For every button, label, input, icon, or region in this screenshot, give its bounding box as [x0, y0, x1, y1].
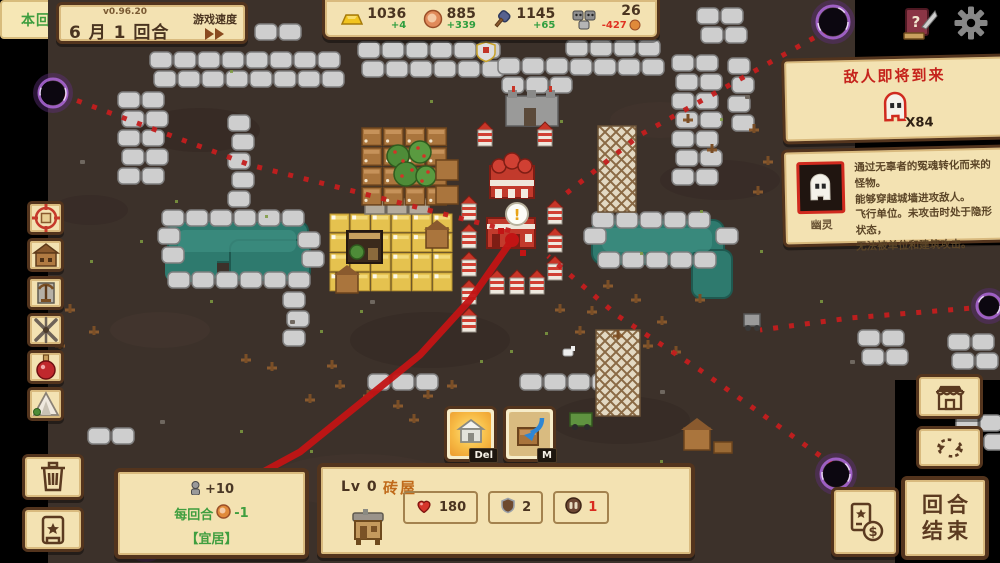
resource-value: 26 [621, 4, 640, 18]
occupancy-chip: 1 [553, 491, 609, 524]
enemy-incoming-panel: 敌人即将到来 X84 [781, 53, 1000, 144]
speed-label: 游戏速度 [193, 11, 237, 27]
meat-icon [423, 9, 443, 29]
unit-name: 幽灵 [810, 216, 832, 232]
svg-text:$: $ [868, 525, 877, 540]
wood-house-icon [32, 242, 60, 268]
end-turn-button[interactable]: 回合 结束 [901, 476, 989, 560]
fast-forward-icon[interactable] [205, 28, 225, 40]
heart-icon [415, 498, 433, 518]
end-turn-label-line2: 结束 [922, 518, 972, 544]
shield-icon [500, 497, 516, 518]
resource-gold: 1036+4 [341, 7, 406, 31]
person-icon [189, 481, 202, 499]
market-button[interactable] [916, 374, 983, 419]
enemy-count: X84 [905, 115, 933, 131]
ghost-icon [796, 161, 845, 214]
unit-description: 通过无辜者的冤魂转化而来的怪物。 能够穿越城墙进攻敌人。 飞行单位。未攻击时处于… [854, 158, 998, 243]
hotbar-slot-delete[interactable]: Del [444, 406, 497, 462]
resource-value: 1036 [367, 7, 406, 21]
market-icon [933, 381, 967, 413]
target-icon [32, 204, 60, 232]
resource-meat: 885+339 [423, 7, 476, 31]
selected-building-panel: Lv 0 砖屋 180 2 1 [317, 463, 695, 558]
trash-button[interactable] [22, 454, 84, 500]
card-album-button[interactable] [22, 507, 84, 552]
unit-info-panel: 幽灵 通过无辜者的冤魂转化而来的怪物。 能够穿越城墙进攻敌人。 飞行单位。未攻击… [781, 144, 1000, 247]
potion-icon [33, 353, 59, 381]
alert-marker[interactable]: ! [506, 203, 528, 225]
population-icon [572, 8, 598, 30]
help-button[interactable]: ? [901, 6, 939, 42]
sidebar-item-tent[interactable] [27, 387, 64, 421]
resource-delta: -427 [602, 21, 627, 31]
resource-tools: 1145+65 [492, 7, 555, 31]
occupancy-value: 1 [588, 500, 597, 515]
sidebar-item-house[interactable] [27, 238, 64, 272]
armor-chip: 2 [488, 491, 543, 524]
rotate-button[interactable] [916, 426, 983, 469]
rotate-arrows-icon [933, 433, 967, 463]
tent-icon [32, 391, 60, 417]
building-icon [347, 507, 389, 553]
end-turn-label-line1: 回合 [922, 492, 972, 518]
resource-delta: +4 [391, 21, 406, 31]
sidebar-item-ballista[interactable] [27, 276, 64, 310]
turn-date: 6 月 1 回合 [69, 18, 169, 43]
resource-delta: +339 [447, 21, 476, 31]
game-window: ! v0.96.20 6 月 1 回合 游戏速度 1036+4 885+339 … [0, 0, 1000, 563]
tool-icon [492, 9, 512, 29]
resource-bar: 1036+4 885+339 1145+65 26 -427 [322, 0, 660, 40]
trap-icon [32, 316, 60, 344]
trash-icon [38, 461, 68, 493]
upkeep-prefix: 每回合 [174, 504, 213, 523]
hotbar-slot-move[interactable]: M [503, 406, 556, 462]
enemy-incoming-title: 敌人即将到来 [784, 63, 1000, 89]
turn-panel: v0.96.20 6 月 1 回合 游戏速度 [56, 2, 248, 44]
gold-icon [341, 11, 363, 27]
resource-population: 26 -427 [572, 4, 641, 34]
hp-chip: 180 [403, 491, 478, 524]
population-bonus: +10 [205, 482, 234, 497]
occupants-icon [565, 497, 582, 518]
resource-value: 1145 [516, 7, 555, 21]
card-album-icon [38, 514, 68, 546]
svg-text:!: ! [514, 206, 521, 224]
svg-text:?: ? [912, 13, 921, 31]
sidebar-item-trap[interactable] [27, 313, 64, 347]
upkeep-value: -1 [234, 506, 248, 521]
food-shortage-icon [629, 18, 641, 34]
sidebar-item-potion[interactable] [27, 350, 64, 384]
card-coin-icon: $ [845, 500, 885, 544]
sidebar-item-target[interactable] [27, 201, 64, 235]
ballista-icon [32, 279, 60, 307]
sell-cards-button[interactable]: $ [831, 487, 899, 557]
hotkey-label: Del [469, 448, 498, 463]
version-label: v0.96.20 [59, 7, 191, 17]
building-trait: 【宜居】 [185, 528, 237, 547]
resource-delta: +65 [533, 21, 555, 31]
armor-value: 2 [522, 500, 531, 515]
hotkey-label: M [537, 448, 557, 463]
hp-value: 180 [439, 500, 466, 515]
building-effect-panel: +10 每回合 -1 【宜居】 [114, 468, 309, 559]
resource-value: 885 [447, 7, 476, 21]
meat-icon [216, 504, 231, 523]
building-level: Lv 0 [341, 479, 378, 495]
settings-gear-icon[interactable] [950, 4, 992, 42]
